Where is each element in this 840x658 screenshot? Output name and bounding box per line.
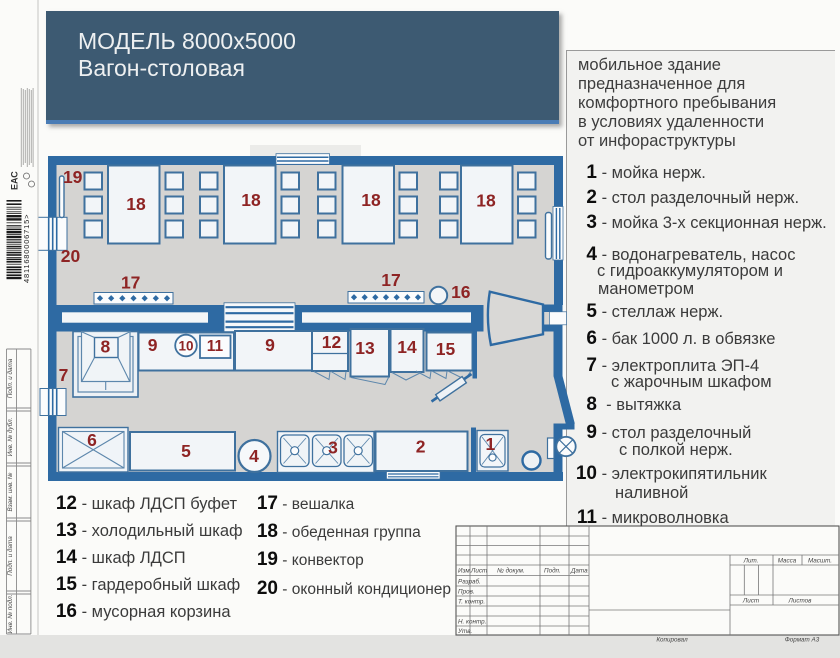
svg-text:Лист: Лист	[742, 598, 759, 605]
svg-text:18: 18	[476, 191, 496, 211]
svg-text:ЕАС: ЕАС	[10, 171, 20, 190]
svg-text:17: 17	[121, 273, 140, 293]
svg-text:Н. контр.: Н. контр.	[458, 619, 486, 626]
svg-text:Подп.: Подп.	[544, 567, 561, 575]
svg-text:№ докум.: № докум.	[497, 567, 525, 575]
svg-text:17: 17	[381, 270, 400, 290]
svg-text:Дата: Дата	[570, 568, 588, 575]
svg-text:Изм.: Изм.	[458, 568, 471, 575]
svg-text:7: 7	[59, 365, 69, 385]
svg-text:Копировал: Копировал	[656, 637, 688, 644]
svg-text:Подп. и дата: Подп. и дата	[6, 358, 14, 398]
svg-text:14: 14	[397, 337, 417, 357]
svg-text:6: 6	[87, 430, 97, 450]
svg-text:1: 1	[486, 434, 496, 454]
svg-text:18: 18	[241, 190, 261, 210]
svg-text:11: 11	[207, 338, 224, 355]
svg-text:Взам. инв. №: Взам. инв. №	[7, 472, 14, 511]
svg-text:8: 8	[101, 337, 111, 357]
svg-text:12: 12	[322, 332, 342, 352]
svg-text:Листов: Листов	[788, 598, 813, 605]
svg-text:Разраб.: Разраб.	[458, 578, 481, 586]
svg-text:5: 5	[181, 441, 191, 461]
svg-text:Масшт.: Масшт.	[808, 558, 832, 565]
svg-text:Подп. и дата: Подп. и дата	[6, 536, 14, 576]
svg-text:15: 15	[436, 339, 456, 359]
svg-text:Утв.: Утв.	[457, 628, 472, 635]
svg-text:Масса: Масса	[778, 558, 797, 565]
svg-text:18: 18	[126, 194, 146, 214]
svg-text:Инв. № подл.: Инв. № подл.	[6, 594, 14, 633]
svg-text:Пров.: Пров.	[458, 589, 475, 596]
svg-text:4811680006715>: 4811680006715>	[22, 214, 31, 283]
svg-text:Лит.: Лит.	[743, 558, 759, 565]
svg-text:10: 10	[178, 339, 193, 354]
svg-text:20: 20	[61, 246, 81, 266]
svg-text:Лист: Лист	[470, 568, 487, 575]
svg-text:3: 3	[328, 438, 338, 458]
svg-text:9: 9	[148, 335, 158, 355]
svg-text:Т. контр.: Т. контр.	[458, 599, 485, 606]
svg-text:19: 19	[63, 167, 83, 187]
svg-text:Инв. № дубл.: Инв. № дубл.	[6, 418, 14, 457]
svg-text:Формат А3: Формат А3	[785, 637, 820, 644]
svg-text:2: 2	[416, 437, 426, 457]
svg-text:4: 4	[249, 446, 259, 466]
svg-text:13: 13	[355, 338, 375, 358]
svg-text:16: 16	[451, 282, 471, 302]
svg-text:18: 18	[361, 190, 381, 210]
svg-text:9: 9	[265, 335, 275, 355]
